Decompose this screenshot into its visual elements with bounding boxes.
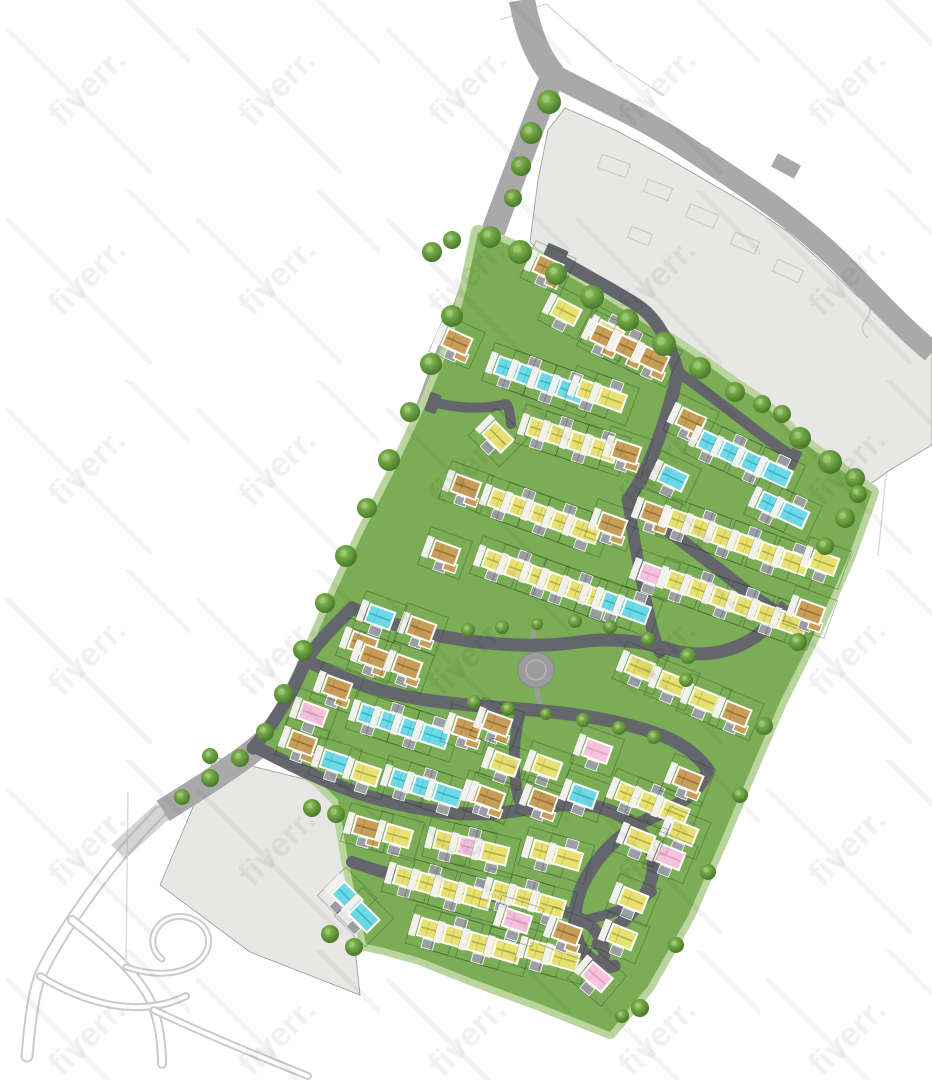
watermark-tiles: [0, 0, 932, 1080]
watermark-overlay: [0, 0, 932, 1080]
site-plan-page: fiverr.: [0, 0, 932, 1080]
site-plan-map: fiverr.: [0, 0, 932, 1080]
